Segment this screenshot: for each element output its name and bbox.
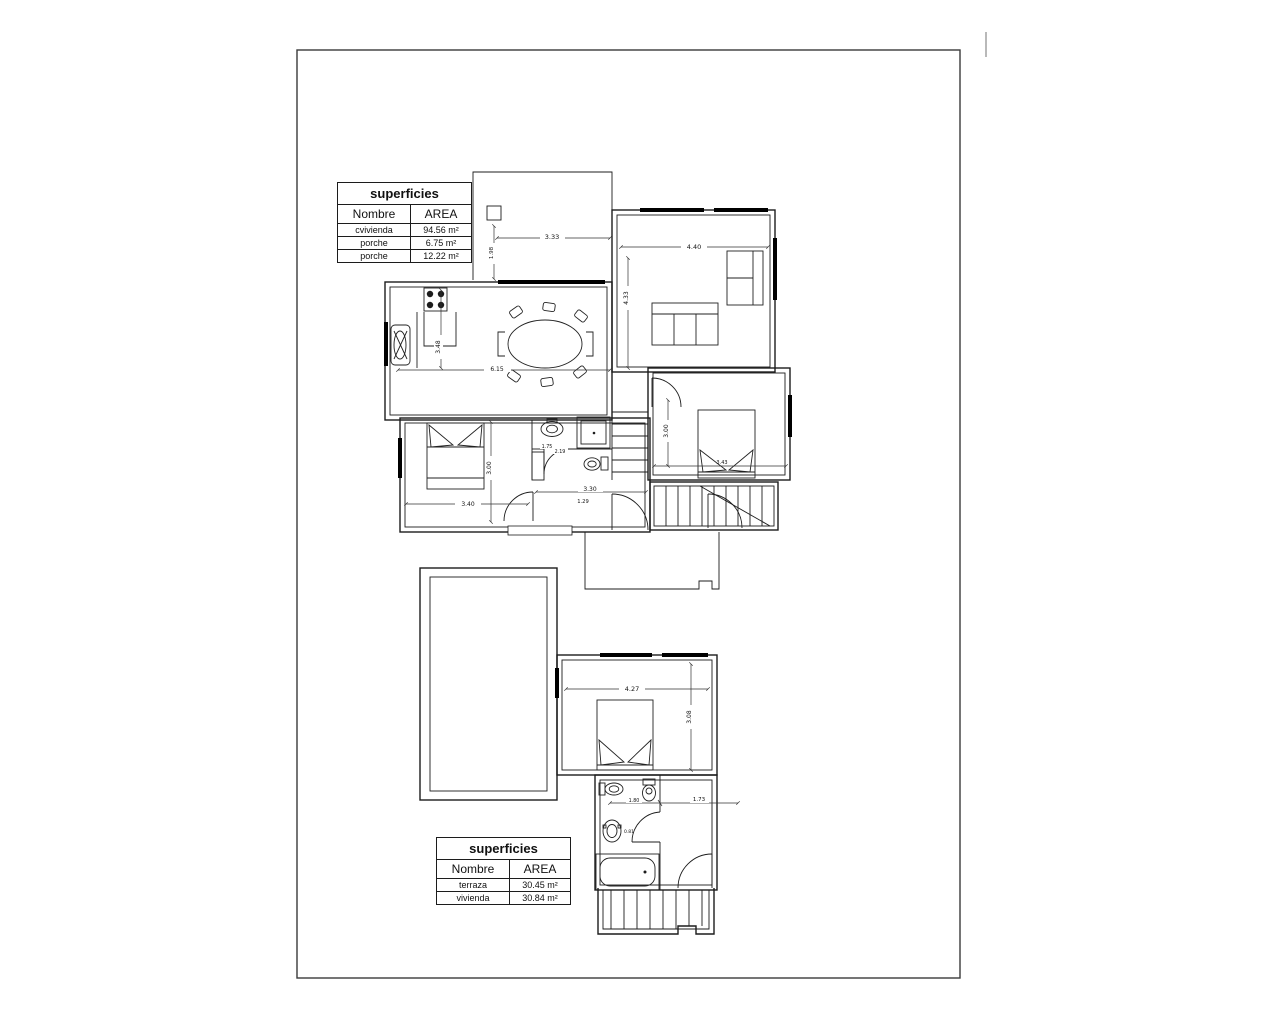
table-row: porche 12.22 m² bbox=[338, 250, 472, 263]
cell-area: 30.45 m² bbox=[510, 879, 571, 892]
dim-label-hall-width: 1.73 bbox=[693, 797, 706, 803]
dim-label-bedroom-right-width: 3.43 bbox=[716, 460, 727, 466]
floor-plan-page: 1.98 3.33 4.40 4.33 3.48 6.15 3.00 3.40 bbox=[0, 0, 1280, 1024]
dim-label-hall-depth: 1.29 bbox=[577, 499, 589, 505]
table-title: superficies bbox=[338, 183, 472, 205]
dim-label-sink: 0.81 bbox=[624, 829, 634, 835]
dim-label-bedroom-height: 3.08 bbox=[686, 710, 693, 724]
dim-label-bedroom-left-width: 3.40 bbox=[461, 501, 475, 508]
column-header-nombre: Nombre bbox=[437, 860, 510, 879]
floor-plan-drawing: 1.98 3.33 4.40 4.33 3.48 6.15 3.00 3.40 bbox=[0, 0, 1280, 1024]
dim-label-porch-depth: 1.98 bbox=[489, 246, 495, 259]
door-threshold bbox=[508, 526, 572, 535]
cell-nombre: porche bbox=[338, 250, 411, 263]
cell-nombre: vivienda bbox=[437, 892, 510, 905]
cell-area: 30.84 m² bbox=[510, 892, 571, 905]
dim-label-bath-width: 1.80 bbox=[629, 798, 640, 804]
table-row: terraza 30.45 m² bbox=[437, 879, 571, 892]
dim-label-hall-width: 3.30 bbox=[583, 486, 597, 493]
dim-label-kitchen-width: 6.15 bbox=[490, 366, 504, 373]
table-row: cvivienda 94.56 m² bbox=[338, 224, 472, 237]
table-row: porche 6.75 m² bbox=[338, 237, 472, 250]
dim-label-bath-b: 2.19 bbox=[555, 449, 566, 455]
column-header-nombre: Nombre bbox=[338, 205, 411, 224]
dim-label-living-width: 4.40 bbox=[687, 243, 701, 251]
dim-label-bedroom-left-height: 3.00 bbox=[486, 461, 493, 475]
dim-label-living-height: 4.33 bbox=[623, 291, 630, 305]
cell-area: 6.75 m² bbox=[411, 237, 472, 250]
cell-nombre: cvivienda bbox=[338, 224, 411, 237]
column-header-area: AREA bbox=[510, 860, 571, 879]
table-title: superficies bbox=[437, 838, 571, 860]
cell-nombre: terraza bbox=[437, 879, 510, 892]
areas-table-upper: superficies Nombre AREA cvivienda 94.56 … bbox=[337, 182, 472, 263]
dim-label-bedroom-width: 4.27 bbox=[625, 685, 639, 693]
cell-area: 94.56 m² bbox=[411, 224, 472, 237]
cell-nombre: porche bbox=[338, 237, 411, 250]
dim-label-bath-a: 1.75 bbox=[542, 444, 553, 450]
dim-label-bedroom-right-height: 3.00 bbox=[663, 424, 670, 438]
areas-table-lower: superficies Nombre AREA terraza 30.45 m²… bbox=[436, 837, 571, 905]
column-header-area: AREA bbox=[411, 205, 472, 224]
dim-label-porch-width: 3.33 bbox=[545, 233, 559, 241]
dim-label-kitchen-height: 3.48 bbox=[435, 340, 442, 354]
table-row: vivienda 30.84 m² bbox=[437, 892, 571, 905]
cell-area: 12.22 m² bbox=[411, 250, 472, 263]
